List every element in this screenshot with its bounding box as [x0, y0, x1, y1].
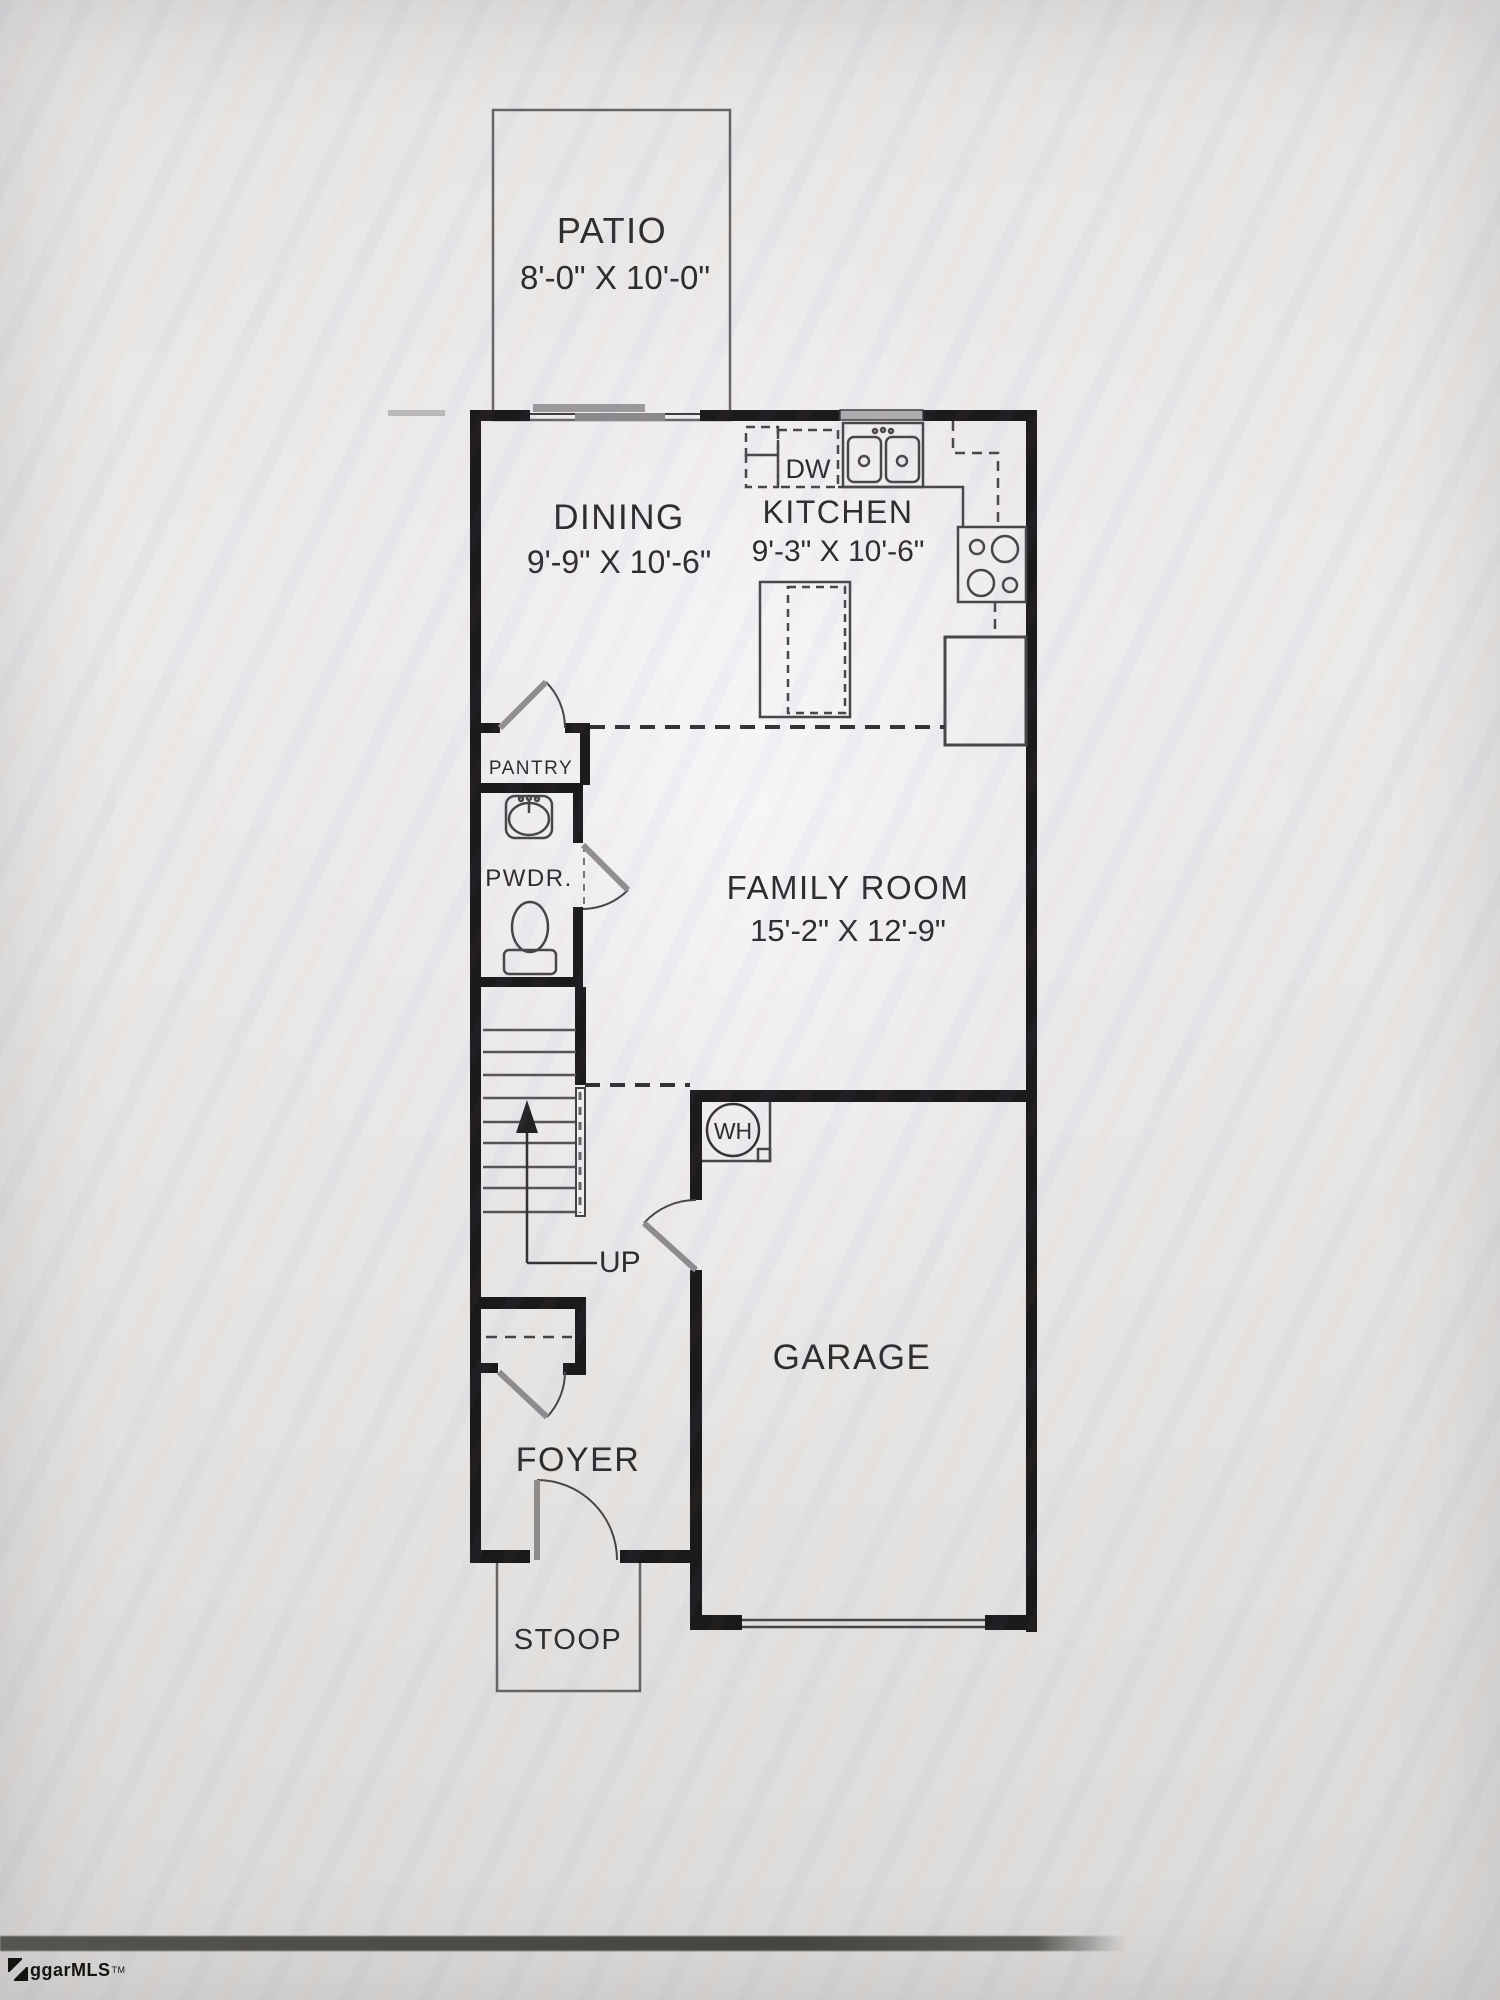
wall-top-mid: [700, 410, 840, 421]
wall-pantry-top-left: [470, 723, 500, 733]
room-label-pantry: PANTRY: [489, 758, 573, 779]
wall-foyer-bottom-left: [470, 1550, 530, 1563]
entry-fixtures: [497, 1480, 640, 1691]
faucet-dot: [527, 796, 531, 800]
powder-door-leaf: [583, 845, 628, 890]
room-dims-family: 15'-2" X 12'-9": [750, 913, 946, 948]
screen-bezel-edge: [0, 1936, 1126, 1951]
wall-closet-stub-left: [481, 1363, 498, 1373]
wall-garage-bottom-left: [690, 1615, 742, 1630]
walls: [388, 410, 1037, 1632]
kitchen-window: [840, 410, 923, 420]
wall-powder-top: [470, 783, 583, 793]
wall-stair-right: [575, 987, 586, 1085]
dishwasher-label: DW: [786, 454, 831, 484]
faucet-dot: [889, 429, 893, 433]
wall-closet-top: [470, 1297, 585, 1309]
closet-door-leaf: [499, 1372, 547, 1417]
garage-entry-door-leaf: [644, 1223, 696, 1270]
wall-foyer-bottom-right: [620, 1550, 702, 1563]
island-counter-dashed: [788, 587, 845, 713]
wall-powder-bottom: [470, 977, 583, 987]
island-outline: [760, 582, 850, 717]
room-label-patio: PATIO: [557, 210, 667, 251]
burner-small: [970, 540, 984, 554]
faucet-dot: [873, 429, 877, 433]
faucet-dot: [881, 428, 885, 432]
wall-garage-bottom-right: [985, 1615, 1037, 1630]
room-boundaries: [585, 727, 945, 1085]
mls-trademark: TM: [112, 1965, 126, 1975]
burner-large: [968, 570, 994, 596]
counter-cabinet-dashed2: [746, 455, 778, 487]
stair-arrow-head: [516, 1100, 538, 1133]
floor-plan-drawing: PATIO 8'-0" X 10'-0": [0, 0, 1500, 2000]
sliding-door-panel-inner: [575, 413, 665, 421]
room-dims-dining: 9'-9" X 10'-6": [527, 544, 711, 580]
front-door-arc: [537, 1480, 617, 1560]
room-label-family: FAMILY ROOM: [727, 869, 970, 906]
sink-drain-left: [859, 456, 869, 466]
floor-plan-photo: PATIO 8'-0" X 10'-0": [0, 0, 1500, 2000]
burner-small: [1003, 578, 1017, 592]
sink-basin-right: [886, 437, 919, 482]
counter-cabinet-dashed: [746, 427, 778, 455]
garage-door-arc: [644, 1200, 696, 1223]
water-heater-label: WH: [714, 1118, 752, 1144]
powder-door-arc: [583, 890, 628, 909]
adjacent-wall-line: [388, 410, 445, 416]
toilet-tank: [504, 950, 556, 974]
room-label-powder: PWDR.: [485, 865, 573, 892]
refrigerator-outline: [945, 637, 1026, 745]
wall-garage-top: [690, 1090, 1037, 1102]
wall-garage-left-lower: [690, 1270, 702, 1630]
powder-room-fixtures: [500, 682, 628, 974]
sink-drain-right: [897, 456, 907, 466]
wall-top-right: [923, 410, 1037, 421]
water-heater-drain: [758, 1149, 770, 1161]
wall-powder-right-lower: [573, 907, 583, 987]
pantry-door-arc: [546, 682, 565, 728]
room-dims-patio: 8'-0" X 10'-0": [520, 259, 710, 296]
wall-garage-left-upper: [690, 1090, 702, 1200]
toilet-bowl: [512, 902, 548, 952]
pantry-door-leaf: [500, 682, 546, 728]
burner-large: [992, 536, 1018, 562]
mls-logo-icon: [8, 1958, 28, 1982]
faucet-dot: [519, 797, 523, 801]
patio-area: PATIO 8'-0" X 10'-0": [493, 110, 730, 420]
room-label-garage: GARAGE: [773, 1338, 932, 1377]
faucet-dot: [535, 797, 539, 801]
wall-powder-right-upper: [573, 783, 583, 843]
sink-basin-left: [848, 437, 881, 482]
closet-door-arc: [547, 1372, 565, 1417]
sliding-door-panel-outer: [533, 404, 645, 412]
room-label-dining: DINING: [553, 498, 685, 537]
wall-closet-stub-right: [563, 1363, 585, 1375]
room-label-stoop: STOOP: [514, 1624, 623, 1656]
counter-dashed-right: [953, 421, 998, 527]
mls-watermark: ggarMLS TM: [8, 1950, 126, 1990]
wall-right: [1026, 410, 1037, 1632]
room-label-foyer: FOYER: [516, 1441, 641, 1479]
room-dims-kitchen: 9'-3" X 10'-6": [752, 535, 925, 568]
wall-pantry-right: [580, 723, 590, 785]
room-label-kitchen: KITCHEN: [763, 494, 914, 530]
room-labels: DINING 9'-9" X 10'-6" KITCHEN 9'-3" X 10…: [485, 454, 969, 1656]
mls-watermark-text: ggarMLS: [30, 1960, 111, 1981]
stairs-up-label: UP: [599, 1246, 641, 1279]
